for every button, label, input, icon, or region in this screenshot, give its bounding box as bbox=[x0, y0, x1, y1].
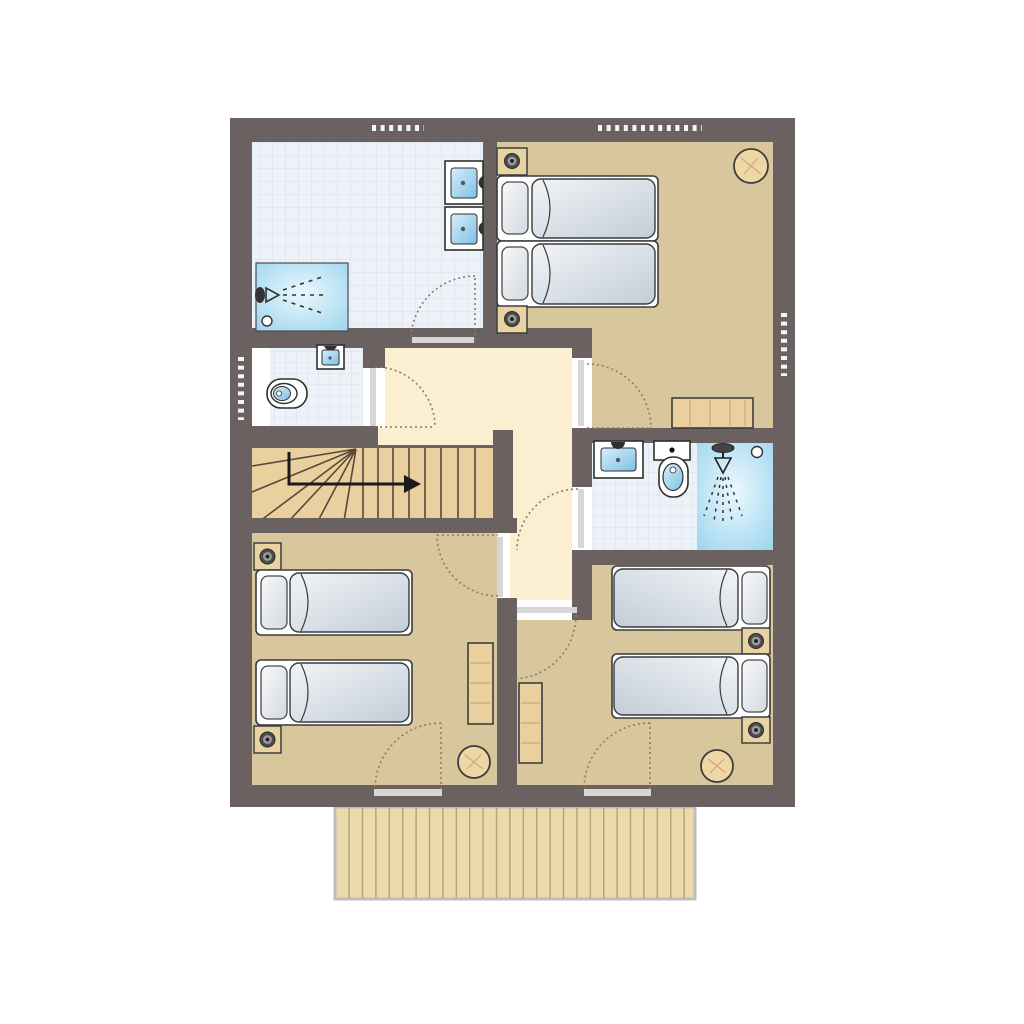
wardrobe-icon bbox=[519, 683, 542, 763]
bed-icon bbox=[497, 241, 658, 307]
nightstand-icon bbox=[742, 628, 770, 654]
door-threshold bbox=[412, 337, 474, 343]
bed-icon bbox=[497, 176, 658, 241]
bed-icon bbox=[612, 566, 770, 630]
nightstand-icon bbox=[497, 148, 527, 175]
bed-icon bbox=[256, 570, 412, 635]
washbasin-icon bbox=[594, 441, 643, 478]
stool-icon bbox=[458, 746, 490, 778]
balcony bbox=[335, 807, 695, 899]
washbasin-icon bbox=[445, 161, 483, 204]
washbasin-icon bbox=[317, 345, 344, 369]
door-threshold bbox=[370, 368, 376, 426]
door-threshold bbox=[578, 489, 584, 548]
nightstand-icon bbox=[497, 306, 527, 333]
bed-icon bbox=[612, 654, 770, 718]
door-threshold bbox=[517, 607, 577, 613]
door-threshold bbox=[497, 537, 503, 597]
balcony-door-threshold bbox=[584, 789, 651, 796]
toilet-icon bbox=[654, 441, 690, 497]
floor-plan-page: Upper floor plan with two bathrooms, WC,… bbox=[0, 0, 1024, 1024]
balcony-door-threshold bbox=[374, 789, 442, 796]
nightstand-icon bbox=[254, 543, 281, 570]
nightstand-icon bbox=[254, 726, 281, 753]
nightstand-icon bbox=[742, 717, 770, 743]
washbasin-icon bbox=[445, 207, 483, 250]
round-table-icon bbox=[734, 149, 768, 183]
toilet-icon bbox=[267, 379, 307, 408]
door-threshold bbox=[578, 360, 584, 426]
shower-icon bbox=[255, 263, 348, 331]
desk-icon bbox=[468, 643, 493, 724]
floor-plan-drawing: Upper floor plan with two bathrooms, WC,… bbox=[0, 0, 1024, 1024]
bed-icon bbox=[256, 660, 412, 725]
desk-icon bbox=[672, 398, 753, 428]
room-staircase bbox=[252, 445, 493, 521]
shower-area bbox=[697, 443, 773, 550]
stool-icon bbox=[701, 750, 733, 782]
